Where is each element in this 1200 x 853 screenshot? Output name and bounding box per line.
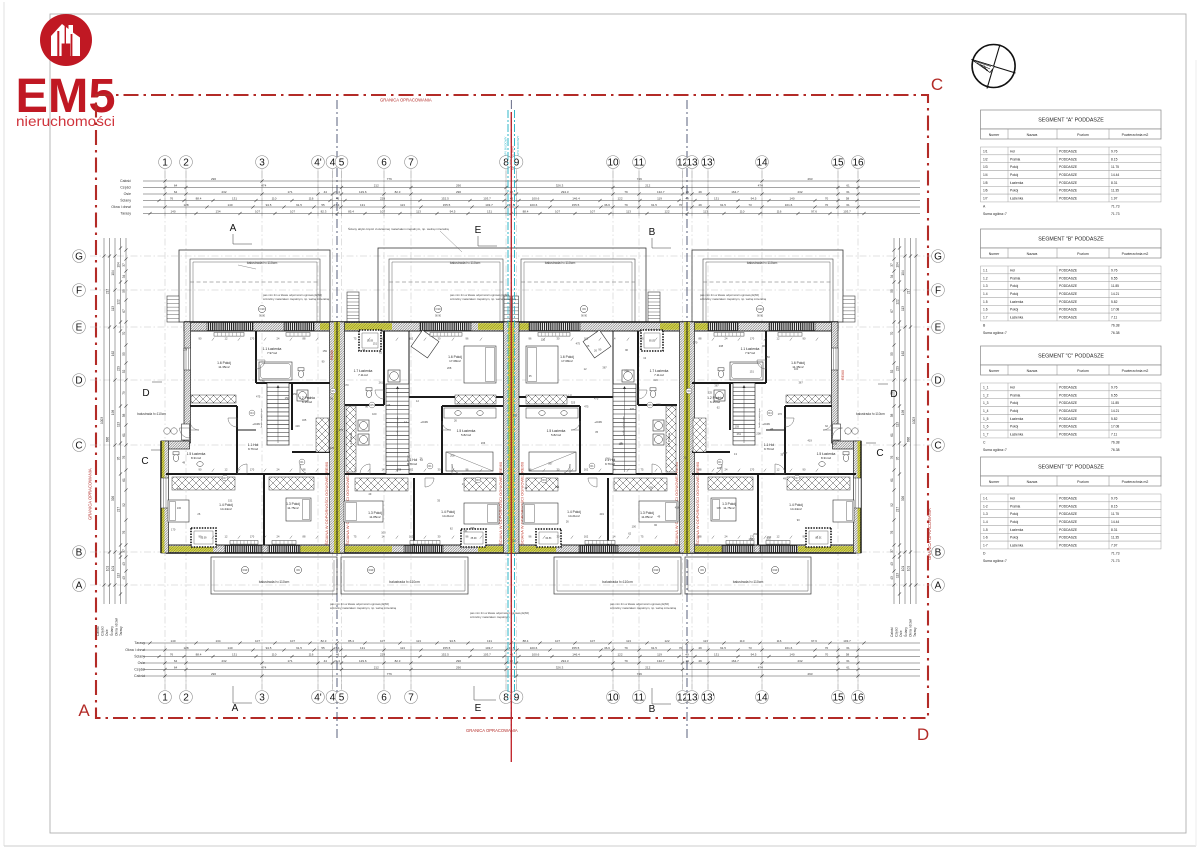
svg-text:475: 475 xyxy=(584,405,589,409)
svg-text:PODDASZE: PODDASZE xyxy=(1059,284,1078,288)
svg-text:14.21: 14.21 xyxy=(1111,409,1119,413)
svg-text:PODDASZE: PODDASZE xyxy=(1059,504,1078,508)
svg-text:balustrada h=110cm: balustrada h=110cm xyxy=(247,261,278,265)
svg-text:61: 61 xyxy=(890,478,894,482)
svg-text:27.4: 27.4 xyxy=(334,646,340,650)
svg-text:208: 208 xyxy=(450,453,455,457)
svg-text:8.31: 8.31 xyxy=(1111,181,1118,185)
svg-text:8.31: 8.31 xyxy=(1111,528,1118,532)
svg-text:749: 749 xyxy=(637,672,642,676)
svg-text:76.38: 76.38 xyxy=(1111,323,1120,327)
svg-text:162: 162 xyxy=(584,535,589,539)
svg-text:C: C xyxy=(876,448,883,459)
svg-text:E: E xyxy=(935,323,942,334)
svg-text:55: 55 xyxy=(122,352,126,356)
svg-text:14.44: 14.44 xyxy=(1111,173,1119,177)
svg-text:76.38: 76.38 xyxy=(1111,331,1120,335)
svg-text:128: 128 xyxy=(183,347,188,351)
svg-text:1.2: 1.2 xyxy=(983,276,988,280)
svg-text:1-3: 1-3 xyxy=(983,512,988,516)
svg-text:92: 92 xyxy=(890,503,894,507)
svg-text:D10: D10 xyxy=(369,568,374,572)
svg-text:C: C xyxy=(75,441,82,452)
svg-text:686: 686 xyxy=(106,437,110,443)
svg-text:122: 122 xyxy=(896,299,900,305)
svg-text:PODDASZE: PODDASZE xyxy=(1059,173,1078,177)
svg-text:212: 212 xyxy=(374,183,379,187)
svg-text:107: 107 xyxy=(590,209,595,213)
svg-text:1.1: 1.1 xyxy=(983,268,988,272)
svg-text:PODDASZE: PODDASZE xyxy=(1059,181,1078,185)
svg-text:70: 70 xyxy=(825,646,829,650)
svg-text:94.5: 94.5 xyxy=(450,639,456,643)
svg-text:PODDASZE: PODDASZE xyxy=(1059,433,1078,437)
svg-text:Osie: Osie xyxy=(138,661,145,665)
svg-text:107: 107 xyxy=(255,209,260,213)
svg-text:kratka wentylacyjna: kratka wentylacyjna xyxy=(622,416,625,436)
svg-text:5.82m2: 5.82m2 xyxy=(461,433,471,437)
svg-text:PODDASZE: PODDASZE xyxy=(1059,544,1078,548)
svg-text:PODDASZE: PODDASZE xyxy=(1059,417,1078,421)
svg-text:15: 15 xyxy=(832,158,844,169)
svg-text:Numer: Numer xyxy=(989,369,1000,373)
svg-text:3: 3 xyxy=(259,158,265,169)
svg-text:7.97: 7.97 xyxy=(1111,544,1118,548)
svg-text:8.15: 8.15 xyxy=(1111,157,1118,161)
svg-text:90 90: 90 90 xyxy=(259,316,265,318)
svg-text:91.5: 91.5 xyxy=(296,203,302,207)
svg-text:116: 116 xyxy=(777,639,782,643)
svg-text:474: 474 xyxy=(758,183,763,187)
svg-text:Pokój: Pokój xyxy=(1010,536,1019,540)
svg-text:GRANICA OPRACOWANIA: GRANICA OPRACOWANIA xyxy=(88,468,93,520)
svg-text:134: 134 xyxy=(215,639,220,643)
svg-text:162: 162 xyxy=(584,337,589,341)
svg-text:58: 58 xyxy=(846,652,850,656)
svg-text:PODDASZE: PODDASZE xyxy=(1059,528,1078,532)
svg-text:14: 14 xyxy=(756,158,768,169)
svg-text:PODDASZE: PODDASZE xyxy=(1059,308,1078,312)
svg-text:107: 107 xyxy=(380,209,385,213)
svg-text:162: 162 xyxy=(901,351,905,357)
svg-text:11.35: 11.35 xyxy=(1111,189,1119,193)
svg-text:Części: Części xyxy=(895,627,899,637)
svg-text:17.08m2: 17.08m2 xyxy=(449,359,461,363)
svg-text:131: 131 xyxy=(714,652,719,656)
svg-text:1_6: 1_6 xyxy=(983,425,989,429)
svg-text:55: 55 xyxy=(321,646,325,650)
svg-text:27.4: 27.4 xyxy=(334,659,340,663)
svg-text:REI60: REI60 xyxy=(841,370,845,380)
svg-text:Łazienka: Łazienka xyxy=(1010,181,1023,185)
svg-text:Osie: Osie xyxy=(105,629,109,636)
svg-text:PODDASZE: PODDASZE xyxy=(1059,189,1078,193)
svg-text:14.21: 14.21 xyxy=(1111,292,1119,296)
svg-text:229: 229 xyxy=(380,652,385,656)
svg-text:D13: D13 xyxy=(773,568,778,572)
svg-text:107: 107 xyxy=(290,639,295,643)
svg-text:122: 122 xyxy=(117,299,121,305)
svg-text:162: 162 xyxy=(111,351,115,357)
svg-text:326.3: 326.3 xyxy=(556,183,564,187)
svg-text:100.6: 100.6 xyxy=(530,646,538,650)
svg-text:1/5: 1/5 xyxy=(983,181,988,185)
svg-text:419: 419 xyxy=(675,506,680,510)
svg-text:232: 232 xyxy=(221,659,226,663)
svg-text:71.73: 71.73 xyxy=(1111,559,1120,563)
svg-text:13: 13 xyxy=(686,158,698,169)
svg-text:9.76m2: 9.76m2 xyxy=(248,447,258,451)
svg-text:Całość: Całość xyxy=(890,627,894,637)
svg-text:7: 7 xyxy=(408,158,414,169)
svg-text:131: 131 xyxy=(232,652,237,656)
svg-text:O9: O9 xyxy=(700,568,704,572)
svg-text:76: 76 xyxy=(170,196,174,200)
svg-text:A: A xyxy=(232,703,239,714)
svg-text:Powierzchnia m2: Powierzchnia m2 xyxy=(1122,480,1149,484)
svg-text:PODDASZE: PODDASZE xyxy=(1059,385,1078,389)
svg-text:27.4: 27.4 xyxy=(334,190,340,194)
svg-text:4: 4 xyxy=(330,693,336,704)
svg-text:szczeliny materiałem niepalnym: szczeliny materiałem niepalnym, np. wełn… xyxy=(330,606,397,610)
svg-text:61: 61 xyxy=(846,190,850,194)
svg-text:1_4: 1_4 xyxy=(983,409,989,413)
svg-text:PODDASZE: PODDASZE xyxy=(1059,409,1078,413)
svg-text:7.97m2: 7.97m2 xyxy=(267,351,277,355)
svg-text:79: 79 xyxy=(122,391,126,395)
svg-text:475: 475 xyxy=(594,396,599,400)
svg-text:szczeliny materiałem niepalnym: szczeliny materiałem niepalnym, np. wełn… xyxy=(263,297,330,301)
svg-text:37: 37 xyxy=(122,263,126,267)
svg-text:1.5: 1.5 xyxy=(983,300,988,304)
svg-text:37: 37 xyxy=(890,263,894,267)
svg-text:104: 104 xyxy=(117,262,121,268)
svg-text:49: 49 xyxy=(698,203,702,207)
svg-text:Pokój: Pokój xyxy=(1010,284,1019,288)
svg-text:95: 95 xyxy=(117,457,121,461)
svg-text:1_2: 1_2 xyxy=(983,393,989,397)
svg-text:4': 4' xyxy=(314,693,322,704)
svg-text:11.85m2: 11.85m2 xyxy=(641,515,653,519)
svg-text:293: 293 xyxy=(807,177,812,181)
svg-text:131: 131 xyxy=(360,646,365,650)
svg-text:128: 128 xyxy=(619,442,624,446)
svg-text:C: C xyxy=(141,456,148,467)
svg-text:9.76: 9.76 xyxy=(1111,496,1118,500)
svg-text:17.08: 17.08 xyxy=(1111,308,1119,312)
svg-text:91.5: 91.5 xyxy=(651,203,657,207)
svg-text:14.21m2: 14.21m2 xyxy=(568,514,580,518)
svg-text:122: 122 xyxy=(664,209,669,213)
svg-text:55: 55 xyxy=(890,289,894,293)
svg-text:232: 232 xyxy=(797,190,802,194)
svg-text:76: 76 xyxy=(122,456,126,460)
svg-text:46: 46 xyxy=(336,652,340,656)
svg-text:Łazienka: Łazienka xyxy=(1010,417,1023,421)
svg-text:PODDASZE: PODDASZE xyxy=(1059,157,1078,161)
svg-text:1/2: 1/2 xyxy=(983,157,988,161)
svg-text:14.44: 14.44 xyxy=(1111,520,1119,524)
svg-text:325: 325 xyxy=(302,418,307,422)
svg-text:208: 208 xyxy=(447,366,452,370)
svg-text:100: 100 xyxy=(794,367,799,371)
svg-text:212: 212 xyxy=(374,665,379,669)
svg-text:296: 296 xyxy=(211,672,216,676)
svg-text:170: 170 xyxy=(693,340,698,344)
svg-text:90 90: 90 90 xyxy=(581,316,587,318)
svg-text:+3.06: +3.06 xyxy=(252,422,260,426)
svg-text:nieruchomości: nieruchomości xyxy=(16,114,115,129)
svg-text:1_3: 1_3 xyxy=(983,401,989,405)
svg-text:Całość: Całość xyxy=(120,179,131,183)
svg-text:686: 686 xyxy=(907,437,911,443)
svg-text:152.5: 152.5 xyxy=(441,652,449,656)
svg-text:91.5: 91.5 xyxy=(720,203,726,207)
svg-text:8.15: 8.15 xyxy=(1111,504,1118,508)
svg-text:A: A xyxy=(935,581,942,592)
svg-text:162: 162 xyxy=(409,535,414,539)
svg-text:7: 7 xyxy=(408,693,414,704)
svg-text:Pokój: Pokój xyxy=(1010,308,1019,312)
svg-text:58: 58 xyxy=(122,414,126,418)
svg-text:F: F xyxy=(935,286,941,297)
svg-text:107: 107 xyxy=(255,639,260,643)
svg-text:70: 70 xyxy=(679,203,683,207)
svg-text:101: 101 xyxy=(106,566,110,572)
svg-text:159: 159 xyxy=(683,456,688,460)
svg-text:100: 100 xyxy=(632,525,637,529)
svg-text:55: 55 xyxy=(122,289,126,293)
svg-text:Całość: Całość xyxy=(96,626,100,636)
svg-text:170: 170 xyxy=(750,468,755,472)
svg-text:A: A xyxy=(76,581,83,592)
svg-text:Pokój: Pokój xyxy=(1010,292,1019,296)
svg-text:balustrada h=110cm: balustrada h=110cm xyxy=(747,261,778,265)
svg-text:Pokój: Pokój xyxy=(1010,520,1019,524)
svg-text:Ściany: Ściany xyxy=(109,626,114,636)
svg-text:F: F xyxy=(76,286,82,297)
svg-text:Pralnia: Pralnia xyxy=(1010,276,1020,280)
svg-text:91.5: 91.5 xyxy=(296,646,302,650)
svg-text:119: 119 xyxy=(657,652,662,656)
svg-text:475: 475 xyxy=(576,341,581,345)
svg-text:150: 150 xyxy=(293,392,298,396)
svg-text:SEGMENT "C" PODDASZE: SEGMENT "C" PODDASZE xyxy=(1038,354,1104,360)
svg-text:71.73: 71.73 xyxy=(1111,551,1120,555)
svg-text:11.35m2: 11.35m2 xyxy=(218,365,230,369)
svg-text:PODDASZE: PODDASZE xyxy=(1059,276,1078,280)
svg-text:6.55: 6.55 xyxy=(1111,393,1118,397)
svg-text:PODDASZE: PODDASZE xyxy=(1059,512,1078,516)
svg-text:170: 170 xyxy=(778,412,783,416)
svg-text:161.6: 161.6 xyxy=(785,646,793,650)
svg-text:Okna i drzwi: Okna i drzwi xyxy=(908,619,912,637)
svg-text:91.5: 91.5 xyxy=(651,646,657,650)
svg-text:PODDASZE: PODDASZE xyxy=(1059,316,1078,320)
svg-text:43: 43 xyxy=(122,576,126,580)
svg-text:49: 49 xyxy=(698,659,702,663)
svg-text:261: 261 xyxy=(379,380,384,384)
svg-text:140: 140 xyxy=(789,196,794,200)
svg-text:D: D xyxy=(75,376,82,387)
svg-text:PODDASZE: PODDASZE xyxy=(1059,165,1078,169)
svg-text:103.7: 103.7 xyxy=(843,209,851,213)
svg-text:64: 64 xyxy=(174,183,178,187)
svg-text:290: 290 xyxy=(456,190,461,194)
svg-text:49: 49 xyxy=(698,190,702,194)
svg-text:170: 170 xyxy=(750,337,755,341)
svg-text:10: 10 xyxy=(607,158,619,169)
svg-text:PODDASZE: PODDASZE xyxy=(1059,300,1078,304)
svg-text:27.4: 27.4 xyxy=(334,203,340,207)
svg-text:76.38: 76.38 xyxy=(1111,448,1120,452)
svg-text:161.6: 161.6 xyxy=(785,203,793,207)
svg-text:O9: O9 xyxy=(582,307,586,311)
svg-text:70: 70 xyxy=(122,332,126,336)
svg-text:113: 113 xyxy=(400,646,405,650)
svg-text:1.4: 1.4 xyxy=(983,292,988,296)
svg-text:171: 171 xyxy=(287,190,292,194)
svg-text:100.6: 100.6 xyxy=(532,196,540,200)
svg-text:1.2 Pralnia: 1.2 Pralnia xyxy=(349,432,353,447)
svg-text:15: 15 xyxy=(832,693,844,704)
svg-text:5: 5 xyxy=(339,693,345,704)
svg-text:D: D xyxy=(934,376,941,387)
svg-text:49: 49 xyxy=(685,196,689,200)
svg-text:3: 3 xyxy=(259,693,265,704)
svg-text:97.6: 97.6 xyxy=(811,209,817,213)
svg-text:82.3: 82.3 xyxy=(321,209,327,213)
svg-text:szczeliny materiałem niepalnym: szczeliny materiałem niepalnym, np. wełn… xyxy=(450,297,517,301)
svg-text:131: 131 xyxy=(714,196,719,200)
svg-text:64: 64 xyxy=(174,665,178,669)
svg-text:113: 113 xyxy=(416,639,421,643)
svg-text:Okna i drzwi: Okna i drzwi xyxy=(114,618,118,636)
svg-text:367: 367 xyxy=(714,384,719,388)
svg-text:70: 70 xyxy=(825,652,829,656)
svg-text:9.76m2: 9.76m2 xyxy=(605,462,615,466)
svg-text:43: 43 xyxy=(122,562,126,566)
svg-text:14.21m2: 14.21m2 xyxy=(442,514,454,518)
svg-text:1/7: 1/7 xyxy=(983,197,988,201)
svg-text:Suma ogólna::7: Suma ogólna::7 xyxy=(983,448,1007,452)
svg-text:749: 749 xyxy=(637,177,642,181)
svg-text:11: 11 xyxy=(634,693,645,704)
svg-text:305: 305 xyxy=(470,526,475,530)
svg-text:107: 107 xyxy=(290,209,295,213)
svg-text:113: 113 xyxy=(896,573,900,578)
svg-text:76: 76 xyxy=(170,652,174,656)
svg-text:E: E xyxy=(475,225,482,236)
svg-text:49: 49 xyxy=(685,652,689,656)
svg-text:13: 13 xyxy=(686,693,698,704)
svg-text:Całość: Całość xyxy=(134,674,145,678)
svg-text:103.7: 103.7 xyxy=(483,652,491,656)
svg-text:208: 208 xyxy=(756,431,761,435)
svg-text:217: 217 xyxy=(106,289,110,295)
svg-text:14.44m2: 14.44m2 xyxy=(790,507,802,511)
svg-text:293: 293 xyxy=(807,672,812,676)
svg-text:PODDASZE: PODDASZE xyxy=(1059,401,1078,405)
svg-text:Powierzchnia m2: Powierzchnia m2 xyxy=(1122,252,1149,256)
svg-text:119: 119 xyxy=(657,196,662,200)
svg-text:155.5: 155.5 xyxy=(443,646,451,650)
svg-text:1-7: 1-7 xyxy=(983,544,988,548)
svg-text:Pokój: Pokój xyxy=(1010,189,1019,193)
svg-text:11.85: 11.85 xyxy=(1111,284,1119,288)
svg-text:B: B xyxy=(649,704,656,715)
svg-text:PODDASZE: PODDASZE xyxy=(1059,520,1078,524)
svg-text:128: 128 xyxy=(512,539,517,543)
svg-text:103.7: 103.7 xyxy=(485,646,493,650)
svg-text:Tarasy: Tarasy xyxy=(913,627,917,637)
svg-text:155.5: 155.5 xyxy=(572,646,580,650)
svg-text:1_7: 1_7 xyxy=(983,433,989,437)
svg-text:szczeliny materiałem niepalnym: szczeliny materiałem niepalnym, np. wełn… xyxy=(610,606,677,610)
svg-text:G: G xyxy=(934,252,942,263)
svg-text:305: 305 xyxy=(656,403,661,407)
svg-text:61: 61 xyxy=(846,659,850,663)
svg-text:balustrada h=110cm: balustrada h=110cm xyxy=(545,261,576,265)
svg-text:103.7: 103.7 xyxy=(483,196,491,200)
svg-text:217: 217 xyxy=(896,507,900,513)
svg-text:159: 159 xyxy=(323,349,328,353)
svg-text:100: 100 xyxy=(372,412,377,416)
svg-text:103.7: 103.7 xyxy=(843,639,851,643)
svg-text:Nazwa: Nazwa xyxy=(1027,480,1038,484)
svg-text:Łazienka: Łazienka xyxy=(1010,197,1023,201)
svg-text:212: 212 xyxy=(645,665,650,669)
svg-text:14: 14 xyxy=(756,693,768,704)
svg-text:11.35: 11.35 xyxy=(1111,536,1119,540)
svg-text:1.97: 1.97 xyxy=(1111,197,1118,201)
svg-text:Osie: Osie xyxy=(124,192,131,196)
svg-text:+3.06: +3.06 xyxy=(420,420,428,424)
svg-text:Ściany: Ściany xyxy=(134,654,145,659)
svg-text:Powierzchnia m2: Powierzchnia m2 xyxy=(1122,133,1149,137)
svg-text:90 90: 90 90 xyxy=(435,316,441,318)
svg-text:95: 95 xyxy=(896,457,900,461)
svg-text:128: 128 xyxy=(260,379,265,383)
svg-text:146.4: 146.4 xyxy=(572,652,580,656)
svg-text:129.6: 129.6 xyxy=(359,190,367,194)
svg-text:229: 229 xyxy=(117,366,121,372)
svg-text:217: 217 xyxy=(907,289,911,295)
svg-text:206: 206 xyxy=(624,368,629,372)
svg-text:76.38: 76.38 xyxy=(1111,440,1120,444)
svg-text:+3.06: +3.06 xyxy=(594,420,602,424)
svg-text:Części: Części xyxy=(134,668,145,672)
svg-text:159: 159 xyxy=(833,441,838,445)
svg-text:419: 419 xyxy=(295,424,300,428)
svg-text:11.85: 11.85 xyxy=(1111,401,1119,405)
svg-text:150: 150 xyxy=(765,355,770,359)
svg-text:C: C xyxy=(934,441,941,452)
svg-text:52: 52 xyxy=(122,370,126,374)
svg-text:85.4: 85.4 xyxy=(348,639,354,643)
svg-text:58: 58 xyxy=(846,196,850,200)
svg-text:Hol: Hol xyxy=(1010,149,1015,153)
svg-text:kratka wentylacyjna: kratka wentylacyjna xyxy=(758,408,761,428)
svg-text:261: 261 xyxy=(753,532,758,536)
svg-text:132.7: 132.7 xyxy=(657,659,665,663)
svg-text:1.6: 1.6 xyxy=(983,308,988,312)
svg-text:113: 113 xyxy=(117,573,121,578)
svg-text:GRANICA OPRACOWANIA: GRANICA OPRACOWANIA xyxy=(380,98,432,103)
svg-text:79: 79 xyxy=(624,203,628,207)
svg-text:82.3: 82.3 xyxy=(395,659,401,663)
svg-text:71.73: 71.73 xyxy=(1111,212,1120,216)
